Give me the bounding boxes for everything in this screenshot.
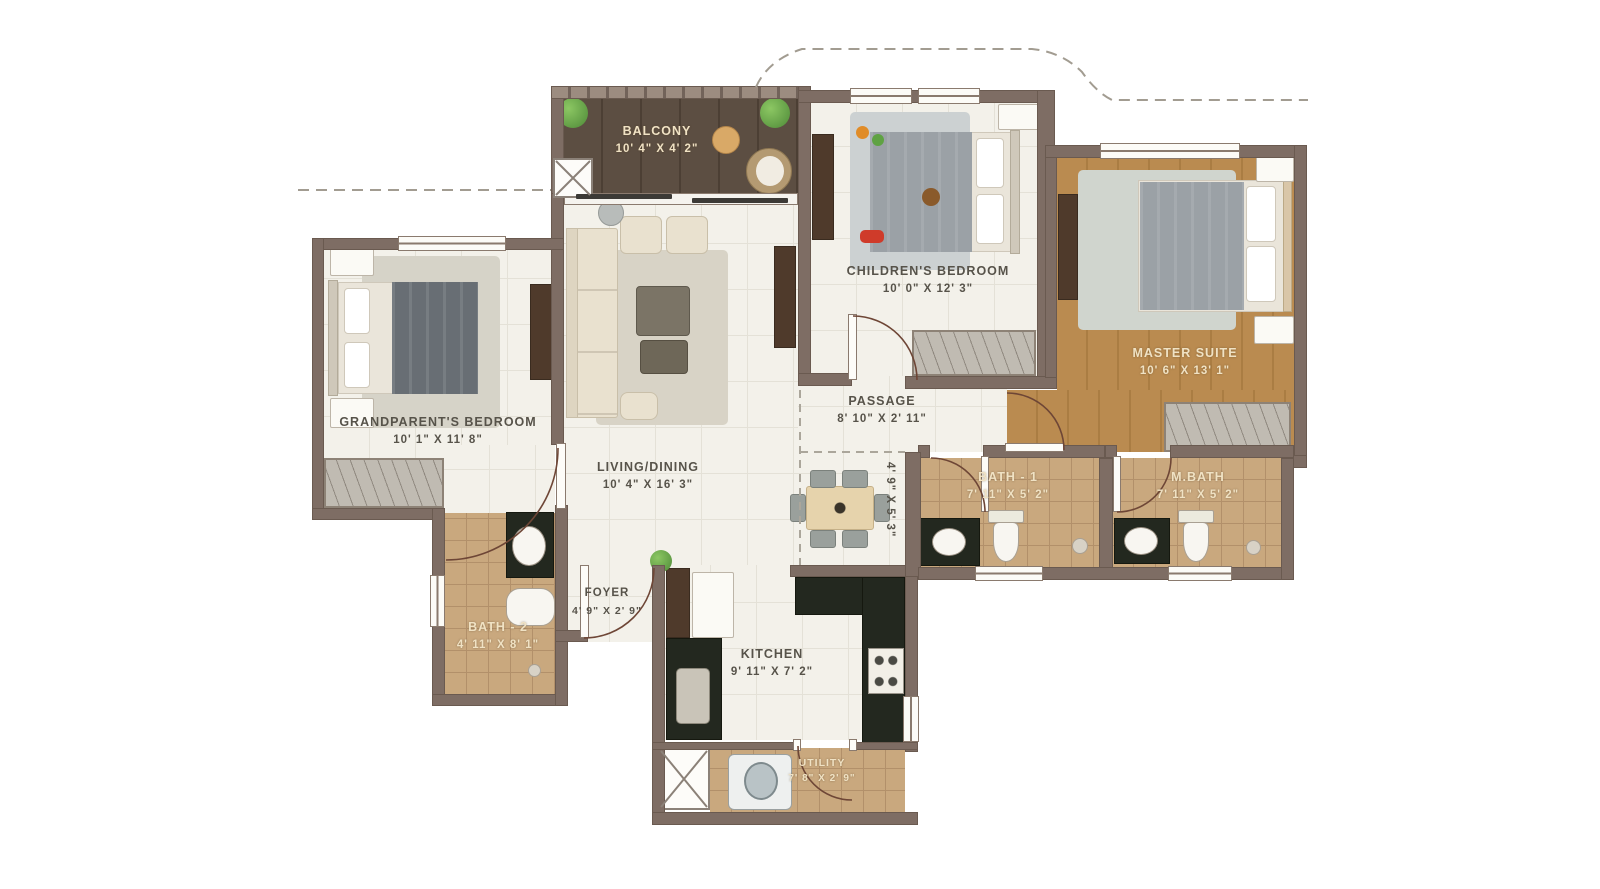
kitchen-sink [676,668,710,724]
label-m-bath: M.BATH 7' 11" X 5' 2" [1157,468,1239,505]
balcony-plant-right [760,98,790,128]
label-childrens-bedroom: CHILDREN'S BEDROOM 10' 0" X 12' 3" [847,262,1010,299]
bath1-window [975,566,1043,581]
gp-blanket [392,282,478,394]
living-dining-dims: 10' 4" X 16' 3" [603,477,693,495]
gp-nightstand-top [330,248,374,276]
living-dining-name: LIVING/DINING [597,458,699,477]
wall-living-left [551,193,564,445]
wall-bath2-right [555,505,568,706]
gp-pillow-2 [344,342,370,388]
balcony-name: BALCONY [623,122,692,141]
label-kitchen: KITCHEN 9' 11" X 7' 2" [731,645,813,682]
master-door-leaf [1005,443,1064,452]
label-grandparents-bedroom: GRANDPARENT'S BEDROOM 10' 1" X 11' 8" [339,413,536,450]
wall-kitchen-top [790,565,918,577]
mbath-toilet [1178,510,1214,566]
childrens-bedroom-dims: 10' 0" X 12' 3" [883,281,973,299]
sofa-backrest [566,228,578,418]
dining-table [806,486,874,530]
utility-duct [658,748,710,810]
childrens-pillow-2 [976,194,1004,244]
armchair-1 [620,216,662,254]
childrens-bedroom-name: CHILDREN'S BEDROOM [847,262,1010,281]
master-window [1100,143,1240,159]
foyer-dims: 4' 9" X 2' 9" [572,603,642,619]
master-bed-headboard [1283,180,1292,312]
bath2-window [430,575,445,627]
wall-kitchen-left [652,565,665,824]
master-nightstand-top [1256,154,1294,182]
utility-door-jamb-left [793,739,801,751]
gp-pillow-1 [344,288,370,334]
coffee-table-2 [640,340,688,374]
wall-bath-divider [1099,458,1113,568]
wall-grandparents-bottom [312,508,444,520]
gas-stove [868,648,904,694]
dining-chair-top-2 [842,470,868,488]
passage-name: PASSAGE [848,392,915,411]
grandparents-bedroom-name: GRANDPARENT'S BEDROOM [339,413,536,432]
wall-mbath-top [1170,445,1294,458]
dining-chair-left [790,494,806,522]
wall-childrens-bottom-right [905,376,1057,389]
label-passage: PASSAGE 8' 10" X 2' 11" [837,392,927,429]
wall-master-right [1294,145,1307,467]
dining-chair-bottom-1 [810,530,836,548]
wall-bath2-bottom [432,694,568,706]
bath-1-name: BATH - 1 [978,468,1038,487]
balcony-dims: 10' 4" X 4' 2" [616,141,699,159]
wall-utility-top-right [850,742,918,750]
dining-chair-bottom-2 [842,530,868,548]
balcony-sliding-panel-2 [692,198,788,203]
toy-green [872,134,884,146]
wall-grandparents-left [312,238,324,520]
balcony-chair-cushion [756,156,784,186]
washing-machine-door [744,762,778,800]
label-master-suite: MASTER SUITE 10' 6" X 13' 1" [1132,344,1237,381]
childrens-pillow-1 [976,138,1004,188]
kitchen-dims: 9' 11" X 7' 2" [731,664,813,682]
bath-2-name: BATH - 2 [468,618,528,637]
mbath-window [1168,566,1232,581]
grandparents-door-leaf [556,443,566,509]
wall-dining-right [905,452,921,577]
childrens-door-leaf [848,314,857,380]
toy-orange [856,126,869,139]
label-living-dining: LIVING/DINING 10' 4" X 16' 3" [597,458,699,495]
bath-1-dims: 7' 11" X 5' 2" [967,487,1049,505]
bath1-shower-drain [1072,538,1088,554]
fridge [692,572,734,638]
master-side-wardrobe [1058,194,1078,300]
foyer-shoe-cabinet [666,568,690,638]
kitchen-window [903,696,919,742]
mbath-shower-drain [1246,540,1261,555]
label-utility: UTILITY 7' 8" X 2' 9" [788,755,855,787]
utility-dims: 7' 8" X 2' 9" [788,771,855,787]
childrens-blanket [870,132,972,252]
bath2-drain [528,664,541,677]
vestibule-floor [444,445,555,515]
dining-chair-top-1 [810,470,836,488]
childrens-wardrobe [912,330,1036,376]
master-blanket [1140,182,1244,310]
living-tv-console [774,246,796,348]
m-bath-name: M.BATH [1171,468,1225,487]
passage-dims: 8' 10" X 2' 11" [837,411,927,429]
label-foyer: FOYER 4' 9" X 2' 9" [572,585,642,619]
bath1-sink [932,528,966,556]
kitchen-name: KITCHEN [741,645,804,664]
label-balcony: BALCONY 10' 4" X 4' 2" [616,122,699,159]
foyer-name: FOYER [585,585,630,603]
childrens-window-2 [918,88,980,104]
m-bath-dims: 7' 11" X 5' 2" [1157,487,1239,505]
childrens-nightstand [998,104,1040,130]
wall-bottom [652,812,918,825]
label-dining-nook-dims: 4' 9" X 5' 3" [884,462,896,562]
label-bath-1: BATH - 1 7' 11" X 5' 2" [967,468,1049,505]
ottoman [620,392,658,420]
wall-childrens-bottom-left [798,373,852,386]
gp-wardrobe [324,458,444,508]
bath1-toilet [988,510,1024,566]
master-pillow-1 [1246,186,1276,242]
childrens-window-1 [850,88,912,104]
toy-car [860,230,884,243]
bath-2-dims: 4' 11" X 8' 1" [457,637,539,655]
coffee-table-1 [636,286,690,336]
utility-name: UTILITY [799,755,846,771]
childrens-bed-headboard [1010,130,1020,254]
childrens-side-wardrobe [812,134,834,240]
grandparents-window [398,236,506,251]
armchair-2 [666,216,708,254]
balcony-sliding-panel-1 [576,194,672,199]
balcony-ac-unit [553,158,593,198]
floor-plan-canvas: BALCONY 10' 4" X 4' 2" LIVING/DINING 10'… [0,0,1600,889]
grandparents-bedroom-dims: 10' 1" X 11' 8" [393,432,483,450]
bath2-sink [512,526,546,566]
master-suite-name: MASTER SUITE [1132,344,1237,363]
teddy-bear-toy [922,188,940,206]
wall-utility-top-left [652,742,797,750]
gp-bed-headboard [328,280,338,396]
wall-mbath-right [1281,458,1294,580]
master-suite-dims: 10' 6" X 13' 1" [1140,363,1230,381]
mbath-door-leaf [1113,456,1121,512]
gp-tv-console [530,284,552,380]
mbath-sink [1124,527,1158,555]
wall-childrens-left [798,86,811,376]
utility-door-jamb-right [849,739,857,751]
master-nightstand-bottom [1254,316,1294,344]
wall-master-left [1045,148,1057,378]
master-pillow-2 [1246,246,1276,302]
wall-balcony-railing [551,86,811,99]
balcony-table [712,126,740,154]
label-bath-2: BATH - 2 4' 11" X 8' 1" [457,618,539,655]
